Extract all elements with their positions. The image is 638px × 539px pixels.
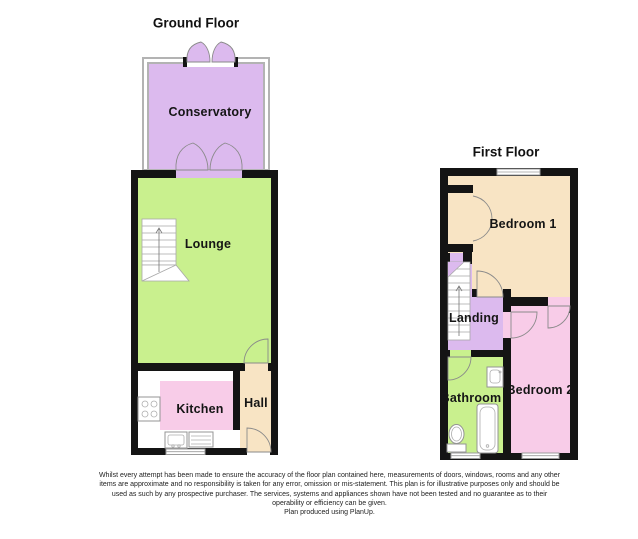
basin-fixture [487,367,503,387]
first-floor-title: First Floor [473,145,540,160]
room-label-bedroom2: Bedroom 2 [506,383,573,397]
room-label-hall: Hall [244,396,268,410]
kitchen-sink-fixture [165,432,187,448]
room-label-bathroom: Bathroom [441,391,502,405]
room-label-landing: Landing [449,311,499,325]
bedroom2-window [522,453,559,459]
room-label-bedroom1: Bedroom 1 [489,217,556,231]
bath-fixture [477,404,498,453]
disclaimer-line: items are approximate and no responsibil… [21,480,638,489]
hob-fixture [138,397,160,421]
disclaimer-line: Whilst every attempt has been made to en… [21,471,638,480]
bathroom-window [451,453,480,459]
disclaimer-line: used as such by any prospective purchase… [21,490,638,499]
floor-plan-page: Ground Floor First Floor Conservatory Lo… [0,0,638,539]
stairs-first [448,262,470,340]
bedroom1-window [497,169,540,175]
toilet-fixture [447,425,466,453]
ground-floor-title: Ground Floor [153,16,239,31]
kitchen-window [166,449,205,455]
disclaimer-line: operability or efficiency can be given. [21,499,638,508]
kitchen-drawers-fixture [189,432,213,447]
room-label-kitchen: Kitchen [176,402,223,416]
floor-plan-drawing [0,0,638,539]
disclaimer-text: Whilst every attempt has been made to en… [21,471,638,517]
disclaimer-line: Plan produced using PlanUp. [21,508,638,517]
room-label-lounge: Lounge [185,237,231,251]
room-label-conservatory: Conservatory [169,105,252,119]
